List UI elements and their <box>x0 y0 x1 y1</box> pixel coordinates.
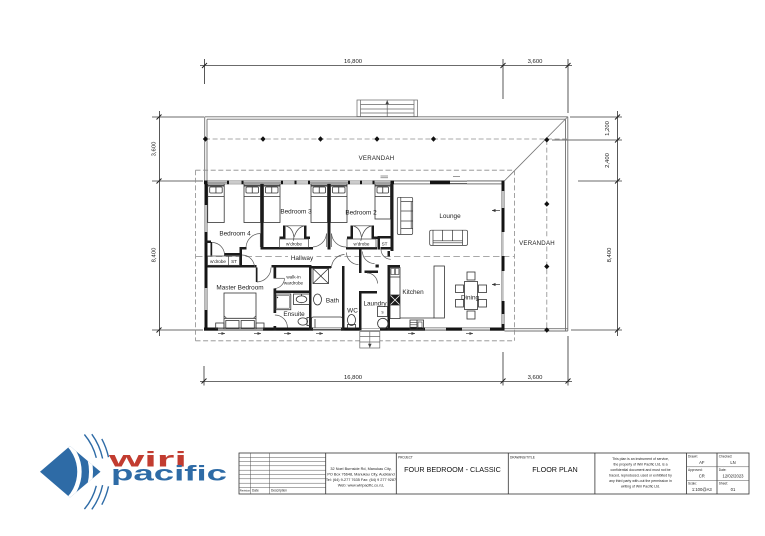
svg-text:WC: WC <box>347 308 358 315</box>
svg-text:Hallway: Hallway <box>291 255 314 262</box>
svg-text:w'drobe: w'drobe <box>286 242 302 247</box>
svg-text:Description: Description <box>271 489 287 493</box>
svg-text:LN: LN <box>730 460 735 465</box>
svg-text:ST: ST <box>231 259 237 264</box>
svg-text:PO Box 76648, Manukau City, Au: PO Box 76648, Manukau City, Auckland <box>327 473 394 477</box>
svg-text:8,400: 8,400 <box>152 247 158 262</box>
svg-text:32 Noel Burnside Rd, Manukau C: 32 Noel Burnside Rd, Manukau City, <box>330 467 391 471</box>
svg-text:Laundry: Laundry <box>363 301 387 308</box>
svg-text:Sheet:: Sheet: <box>719 482 728 486</box>
svg-text:2,400: 2,400 <box>605 152 611 167</box>
svg-text:1,200: 1,200 <box>605 120 611 135</box>
svg-text:Lounge: Lounge <box>439 213 461 220</box>
svg-text:confidential document and must: confidential document and must not be <box>610 468 670 472</box>
svg-text:Dining: Dining <box>461 295 480 302</box>
svg-text:w'drobe: w'drobe <box>354 242 370 247</box>
svg-text:Checked:: Checked: <box>719 455 733 459</box>
svg-text:PROJECT: PROJECT <box>398 456 413 460</box>
svg-text:Bath: Bath <box>326 298 340 305</box>
svg-text:FLOOR PLAN: FLOOR PLAN <box>532 465 578 474</box>
svg-text:any third party with-out the p: any third party with-out the permission … <box>609 479 672 483</box>
svg-text:8,400: 8,400 <box>607 247 613 262</box>
svg-text:CR: CR <box>699 474 705 479</box>
svg-text:This plan is an instrument: This plan is an instrument of service, <box>612 457 669 461</box>
svg-text:3,600: 3,600 <box>528 59 543 65</box>
svg-text:Drawn:: Drawn: <box>688 455 698 459</box>
svg-text:walk-in: walk-in <box>286 275 301 280</box>
svg-text:01: 01 <box>731 487 736 492</box>
svg-text:Bedroom 4: Bedroom 4 <box>219 231 251 238</box>
svg-text:wardrobe: wardrobe <box>284 281 304 286</box>
svg-text:Ensuite: Ensuite <box>283 311 305 318</box>
svg-text:FOUR BEDROOM - CLASSIC: FOUR BEDROOM - CLASSIC <box>404 465 501 474</box>
svg-text:VERANDAH: VERANDAH <box>519 240 555 247</box>
svg-text:1:100@A3: 1:100@A3 <box>692 487 713 492</box>
svg-text:Tel: (64) 9-277 7635 Fax: (64: Tel: (64) 9-277 7635 Fax: (64) 9 277 928… <box>326 478 396 482</box>
svg-text:DRAWING/TITLE: DRAWING/TITLE <box>510 456 535 460</box>
svg-text:Bedroom 3: Bedroom 3 <box>280 209 312 216</box>
svg-text:ST: ST <box>382 242 388 247</box>
svg-text:traced, reproduced, used or ex: traced, reproduced, used or exhibited by <box>609 474 672 478</box>
svg-text:16,800: 16,800 <box>344 59 363 65</box>
svg-text:w'drobe: w'drobe <box>210 259 226 264</box>
svg-text:12/02/2023: 12/02/2023 <box>723 474 745 479</box>
svg-text:AF: AF <box>699 460 705 465</box>
svg-text:16,800: 16,800 <box>344 375 363 381</box>
svg-text:Revision: Revision <box>240 489 251 493</box>
svg-text:3,600: 3,600 <box>528 375 543 381</box>
svg-text:Bedroom 2: Bedroom 2 <box>345 210 377 217</box>
svg-text:Date: Date <box>252 489 259 493</box>
svg-text:Master Bedroom: Master Bedroom <box>216 285 263 292</box>
svg-text:Approved:: Approved: <box>688 468 703 472</box>
svg-text:Kitchen: Kitchen <box>402 289 424 296</box>
svg-text:the property of Wiri Pacif: the property of Wiri Pacific Ltd, is a <box>613 463 667 467</box>
svg-text:Scale:: Scale: <box>688 482 697 486</box>
svg-text:3,600: 3,600 <box>152 141 158 156</box>
svg-text:pacific: pacific <box>111 462 227 486</box>
svg-text:Web: www.wiripacific.co.nz,: Web: www.wiripacific.co.nz, <box>338 484 385 488</box>
svg-text:Date:: Date: <box>719 468 727 472</box>
svg-text:VERANDAH: VERANDAH <box>359 155 395 162</box>
svg-text:writing of Wiri Pacific Ltd.: writing of Wiri Pacific Ltd. <box>621 485 660 489</box>
